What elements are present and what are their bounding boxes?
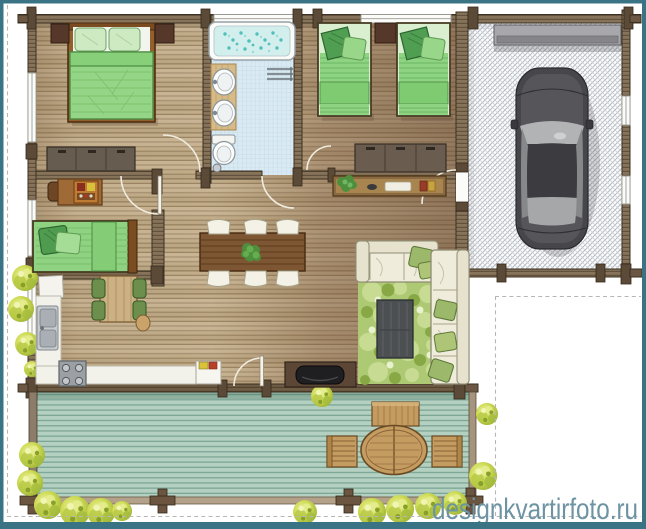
svg-text:designkvartirfoto.ru: designkvartirfoto.ru bbox=[432, 493, 638, 526]
